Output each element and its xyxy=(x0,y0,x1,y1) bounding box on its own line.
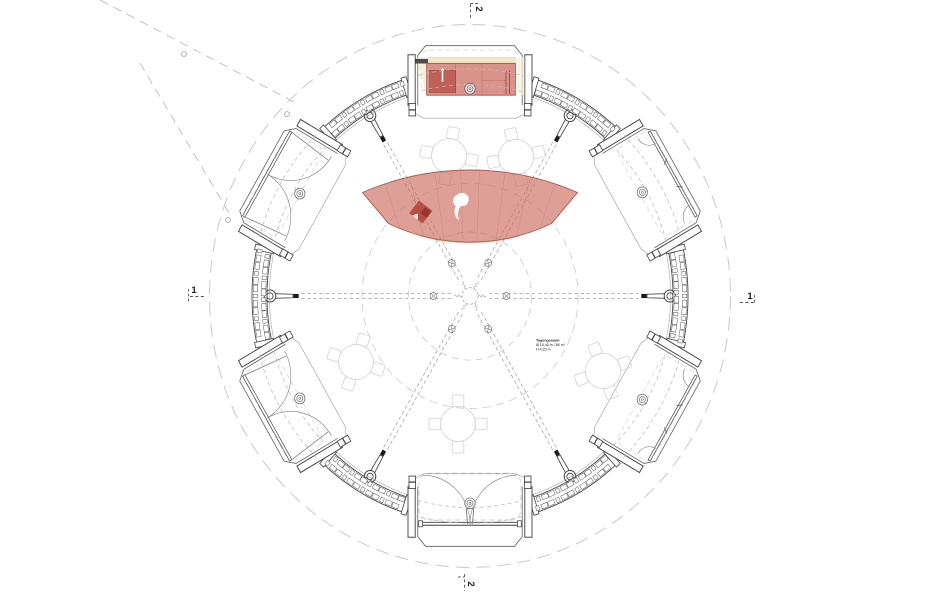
svg-text:1: 1 xyxy=(747,291,753,302)
svg-text:Tagungsraum: Tagungsraum xyxy=(536,339,560,343)
svg-text:2: 2 xyxy=(465,581,476,586)
svg-text:1: 1 xyxy=(191,285,197,296)
svg-text:H 4,20 m: H 4,20 m xyxy=(536,347,551,351)
svg-text:2: 2 xyxy=(473,6,484,11)
